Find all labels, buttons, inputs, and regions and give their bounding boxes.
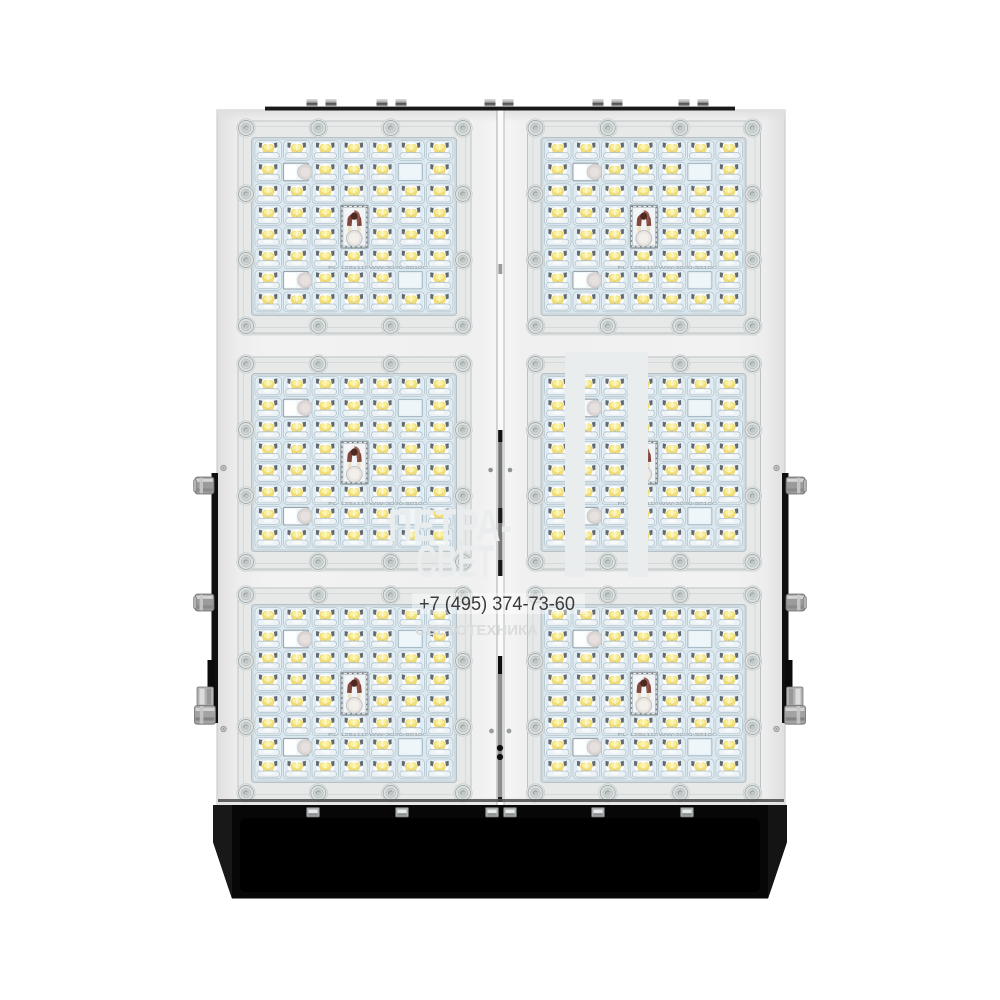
svg-text:СВЕТОТЕХНИКА: СВЕТОТЕХНИКА: [415, 623, 539, 639]
svg-text:+7 (495) 374-73-60: +7 (495) 374-73-60: [419, 594, 575, 615]
svg-text:СВЕТ: СВЕТ: [416, 536, 494, 587]
